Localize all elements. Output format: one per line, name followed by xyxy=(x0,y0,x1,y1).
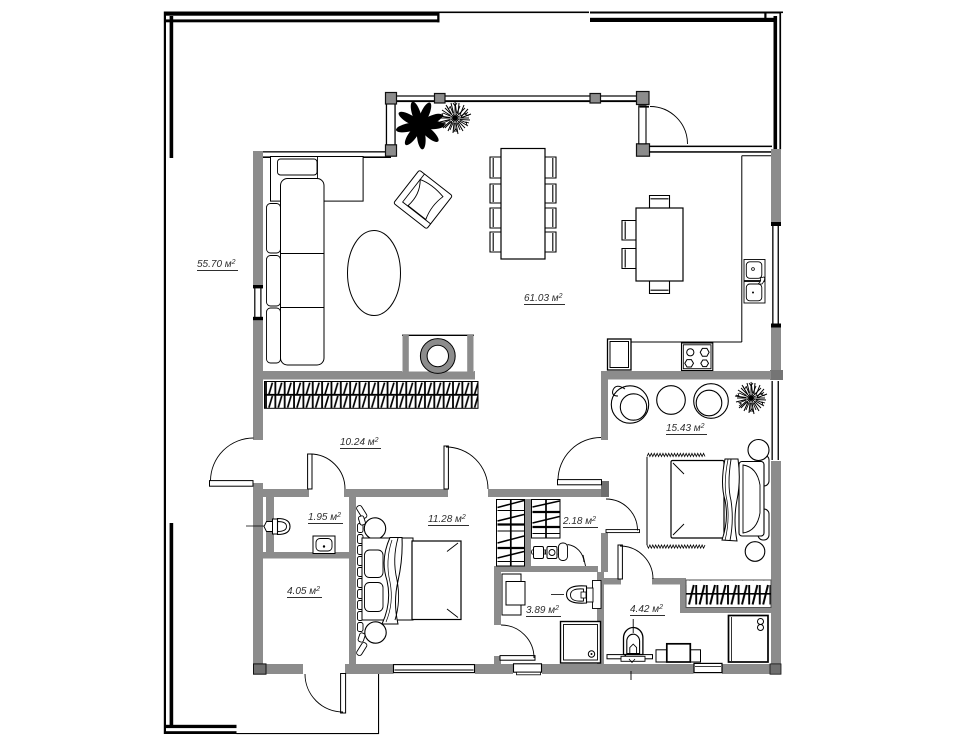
svg-text:2.18 м2: 2.18 м2 xyxy=(562,516,596,527)
svg-text:11.28 м2: 11.28 м2 xyxy=(428,514,466,525)
svg-text:4.42 м2: 4.42 м2 xyxy=(630,604,663,615)
svg-text:4.05 м2: 4.05 м2 xyxy=(287,586,320,597)
svg-text:15.43 м2: 15.43 м2 xyxy=(666,423,705,434)
svg-text:3.89 м2: 3.89 м2 xyxy=(526,605,559,616)
svg-text:1.95 м2: 1.95 м2 xyxy=(308,512,341,523)
svg-text:55.70 м2: 55.70 м2 xyxy=(197,259,236,270)
svg-text:61.03 м2: 61.03 м2 xyxy=(524,293,563,304)
svg-text:10.24 м2: 10.24 м2 xyxy=(340,437,379,448)
